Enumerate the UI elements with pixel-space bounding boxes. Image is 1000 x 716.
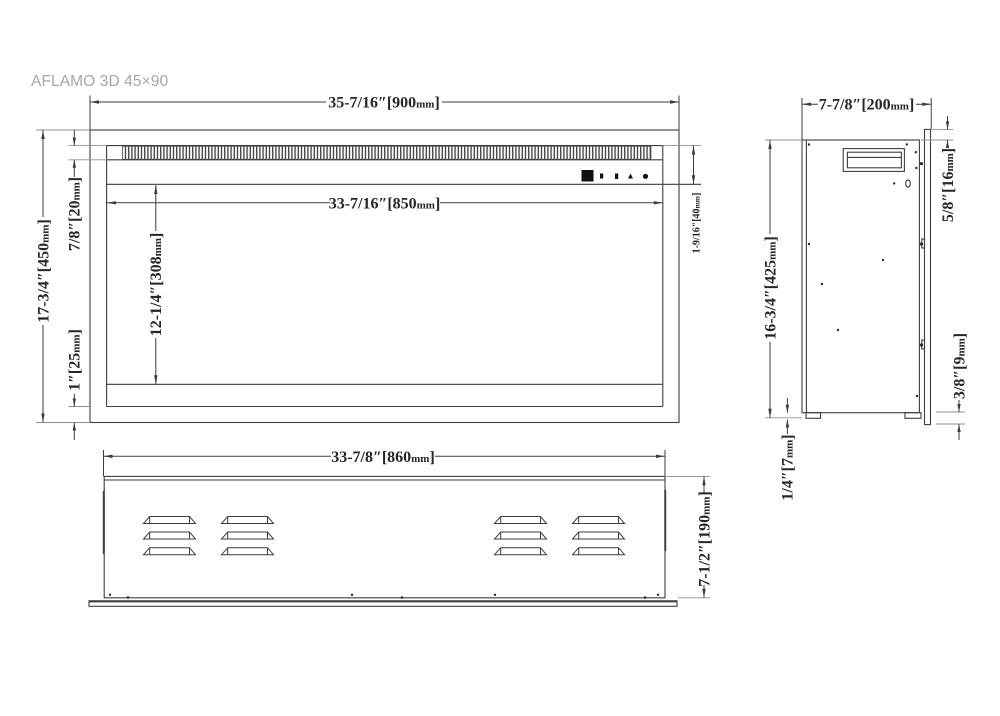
svg-text:1-9/16″[40mm]: 1-9/16″[40mm] bbox=[692, 193, 703, 254]
svg-text:AFLAMO 3D 45×90: AFLAMO 3D 45×90 bbox=[31, 73, 168, 90]
